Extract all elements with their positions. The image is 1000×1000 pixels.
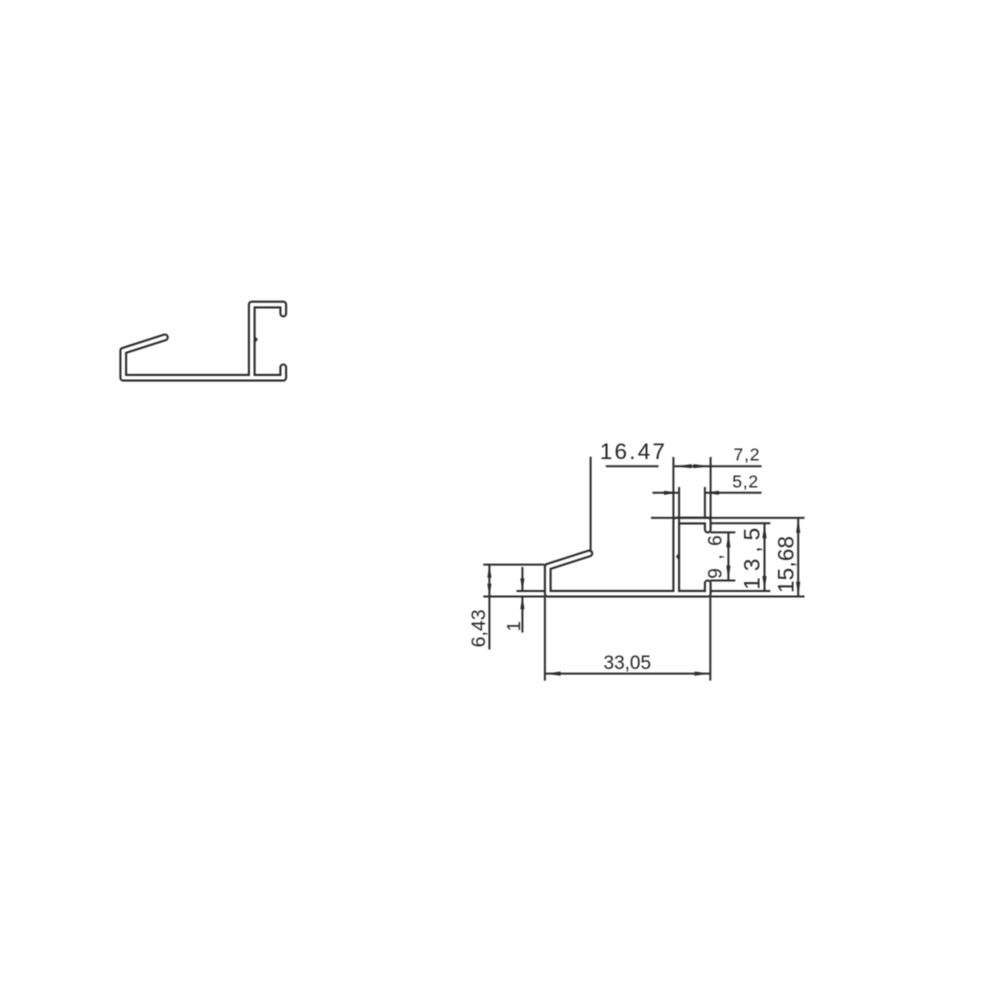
svg-text:6,43: 6,43 bbox=[468, 609, 490, 647]
svg-text:9,6: 9,6 bbox=[706, 527, 727, 579]
svg-text:13,5: 13,5 bbox=[740, 522, 765, 590]
svg-text:5,2: 5,2 bbox=[732, 472, 759, 492]
svg-text:16.47: 16.47 bbox=[600, 439, 667, 464]
svg-text:15,68: 15,68 bbox=[773, 536, 798, 593]
svg-text:33,05: 33,05 bbox=[604, 653, 652, 674]
svg-text:7,2: 7,2 bbox=[734, 444, 761, 464]
svg-text:1: 1 bbox=[503, 621, 524, 631]
